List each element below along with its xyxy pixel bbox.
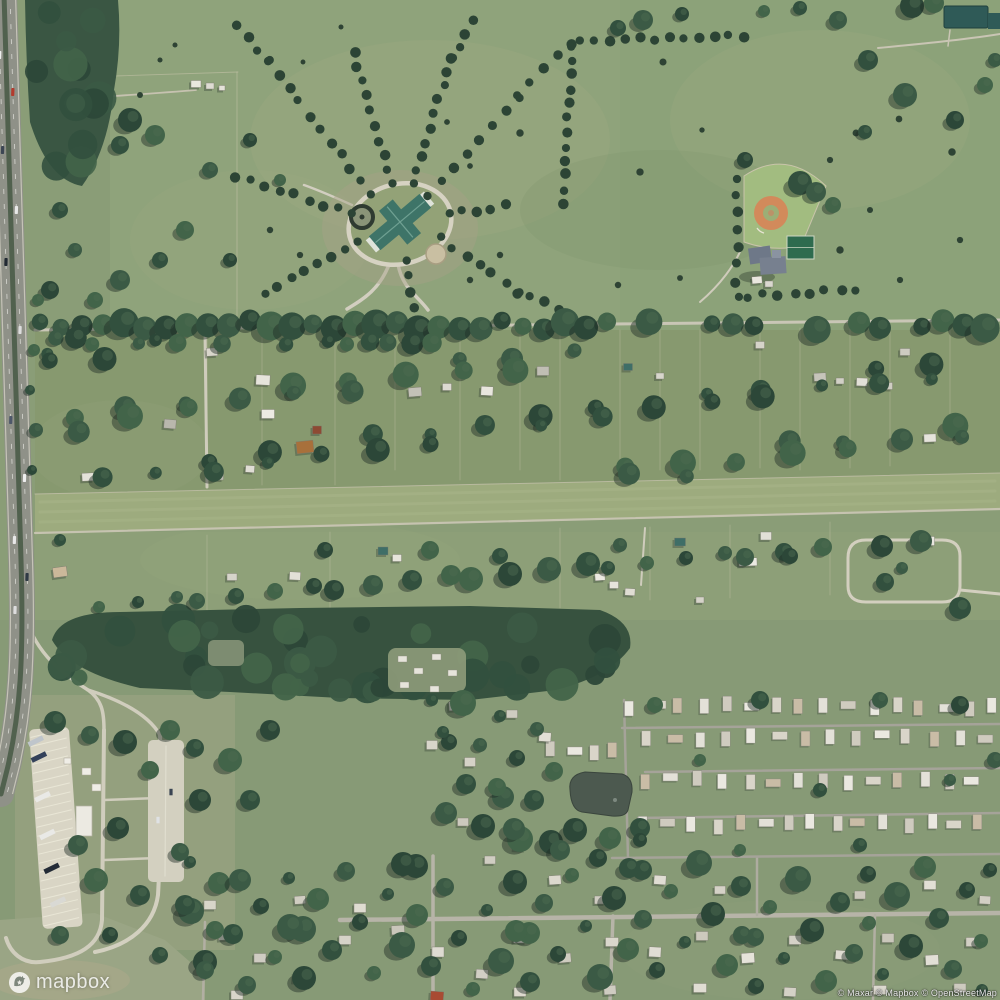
mapbox-logo-icon (8, 971, 31, 994)
map-viewport: mapbox © Maxar © Mapbox © OpenStreetMap (0, 0, 1000, 1000)
satellite-map-canvas[interactable] (0, 0, 1000, 1000)
mapbox-logo[interactable]: mapbox (8, 971, 110, 994)
map-attribution[interactable]: © Maxar © Mapbox © OpenStreetMap (838, 988, 997, 998)
mapbox-logo-text: mapbox (36, 971, 110, 994)
